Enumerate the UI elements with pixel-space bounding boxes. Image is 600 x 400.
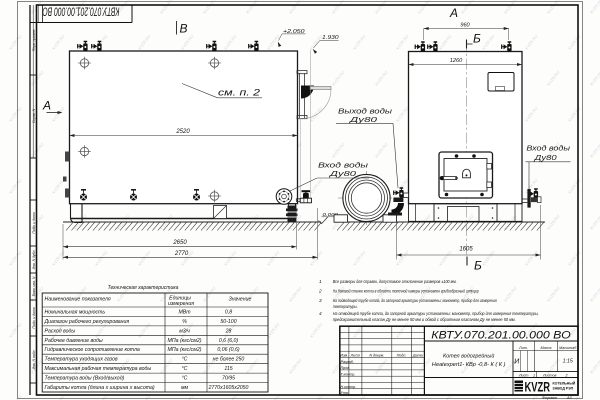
svg-text:Справ. N: Справ. N (32, 108, 36, 123)
svg-text:50-100: 50-100 (220, 319, 236, 325)
svg-text:Все размеры для справок, допус: Все размеры для справок, допустимое откл… (333, 279, 457, 284)
svg-text:Н.контр.: Н.контр. (341, 385, 357, 389)
svg-text:Диапазон рабочего регулировани: Диапазон рабочего регулирования (44, 319, 130, 325)
svg-text:Лист: Лист (350, 354, 361, 358)
svg-text:Наименование показателя: Наименование показателя (45, 297, 111, 303)
svg-text:Вход воды: Вход воды (526, 144, 570, 153)
svg-text:Котел водогрейный: Котел водогрейный (443, 353, 494, 360)
svg-text:Ду80: Ду80 (329, 169, 358, 178)
svg-text:МПа (кгс/см2): МПа (кгс/см2) (168, 347, 202, 353)
svg-text:Температура уходящих газов: Температура уходящих газов (45, 357, 118, 363)
svg-text:Инв. N дубл.: Инв. N дубл. (32, 250, 36, 270)
svg-text:В: В (180, 22, 188, 36)
svg-text:МВт: МВт (178, 309, 191, 315)
svg-text:2: 2 (318, 289, 322, 294)
svg-text:Подп. и дата: Подп. и дата (32, 212, 36, 233)
svg-text:Т.контр.: Т.контр. (341, 372, 356, 376)
svg-text:А: А (449, 6, 458, 20)
svg-text:предохранительный клапан Ду н: предохранительный клапан Ду не менее 50 … (333, 316, 516, 322)
svg-text:см. п. 2: см. п. 2 (218, 88, 260, 98)
svg-text:На подводящей трубе котла, до: На подводящей трубе котла, до запорной а… (333, 297, 497, 303)
svg-text:°С: °С (182, 366, 188, 372)
svg-text:температуры.: температуры. (333, 304, 358, 309)
svg-text:Лист: Лист (518, 373, 529, 377)
svg-text:Б: Б (474, 259, 482, 273)
svg-text:мм: мм (181, 385, 189, 391)
svg-text:Расход воды: Расход воды (45, 328, 76, 334)
svg-text:не более 250: не более 250 (213, 357, 245, 363)
svg-text:Утв.: Утв. (341, 391, 349, 395)
svg-text:Инв. N подл.: Инв. N подл. (32, 350, 36, 370)
svg-text:Пров.: Пров. (341, 366, 351, 370)
svg-text:Ду80: Ду80 (533, 153, 556, 162)
svg-text:Дата: Дата (412, 354, 423, 358)
svg-text:Рабочее давление воды: Рабочее давление воды (45, 338, 103, 344)
svg-text:2: 2 (565, 373, 568, 377)
svg-text:1: 1 (533, 373, 535, 377)
svg-text:КОТЕЛЬНЫЙ: КОТЕЛЬНЫЙ (553, 382, 576, 386)
svg-text:Разраб.: Разраб. (341, 360, 354, 364)
svg-text:2520: 2520 (175, 129, 190, 135)
svg-text:ЗАВОД РЭП: ЗАВОД РЭП (553, 387, 574, 391)
svg-text:0,06 (0,6): 0,06 (0,6) (217, 347, 239, 353)
svg-text:70/95: 70/95 (222, 376, 235, 382)
svg-text:KVZR: KVZR (525, 379, 551, 394)
svg-text:°С: °С (182, 357, 188, 363)
svg-text:Температура воды (Вход/выход): Температура воды (Вход/выход) (45, 376, 125, 382)
svg-text:м3/ч: м3/ч (179, 328, 190, 334)
svg-text:960: 960 (460, 23, 470, 29)
svg-text:КВТУ.070.201.00.000 ВО: КВТУ.070.201.00.000 ВО (43, 4, 120, 18)
svg-text:Номинальная мощность: Номинальная мощность (45, 309, 106, 315)
svg-text:2770х1605х2050: 2770х1605х2050 (208, 385, 249, 391)
svg-text:%: % (182, 319, 187, 325)
svg-text:Перв. примен.: Перв. примен. (32, 29, 36, 52)
svg-text:Техническая характеристика: Техническая характеристика (108, 285, 179, 291)
svg-text:МПа (кгс/см2): МПа (кгс/см2) (168, 338, 202, 344)
svg-text:Подп.: Подп. (397, 354, 407, 358)
svg-text:3: 3 (319, 298, 322, 303)
svg-text:Ду80: Ду80 (348, 115, 378, 124)
svg-text:1:15: 1:15 (563, 359, 573, 365)
svg-text:4: 4 (319, 311, 322, 316)
svg-text:0,6 (6,0): 0,6 (6,0) (219, 338, 239, 344)
svg-text:Изм.: Изм. (340, 354, 348, 358)
svg-text:1: 1 (319, 279, 322, 284)
svg-text:Гидравлическое сопротивление к: Гидравлическое сопротивление котла (45, 347, 140, 353)
svg-text:Габариты котла (длина х ширина: Габариты котла (длина х ширина х высота) (45, 385, 155, 391)
svg-text:Листов: Листов (542, 373, 557, 377)
svg-text:N докум.: N докум. (369, 354, 384, 358)
svg-text:Взам. инв. N: Взам. инв. N (32, 276, 36, 296)
svg-text:А: А (42, 99, 51, 113)
svg-text:°С: °С (182, 376, 188, 382)
svg-text:Максимальная рабочая температу: Максимальная рабочая температура воды (45, 366, 152, 372)
svg-text:Heatexpert1- КВр -0,8- К ( К ): Heatexpert1- КВр -0,8- К ( К ) (432, 362, 506, 368)
svg-text:Масса: Масса (541, 346, 552, 350)
svg-text:Подп. и дата: Подп. и дата (32, 307, 36, 328)
svg-text:2650: 2650 (172, 240, 187, 246)
svg-text:115: 115 (224, 366, 232, 372)
svg-text:А3: А3 (566, 396, 573, 400)
svg-text:Формат: Формат (542, 396, 557, 400)
svg-text:28: 28 (225, 328, 232, 334)
svg-text:2770: 2770 (174, 251, 189, 257)
svg-text:КВТУ.070.201.00.000 ВО: КВТУ.070.201.00.000 ВО (431, 329, 571, 341)
svg-text:Б: Б (473, 32, 481, 46)
svg-text:0,8: 0,8 (225, 309, 232, 315)
svg-text:измерения: измерения (168, 301, 194, 307)
svg-text:Лит.: Лит. (518, 346, 528, 350)
svg-text:1605: 1605 (459, 247, 473, 253)
svg-text:Значение: Значение (229, 297, 252, 303)
svg-text:На боковой стенке котла в обла: На боковой стенке котла в области топочн… (333, 288, 479, 294)
svg-text:Масштаб: Масштаб (559, 346, 577, 350)
svg-text:На отводящей трубе котла, до з: На отводящей трубе котла, до запорной ар… (333, 310, 539, 316)
svg-text:1260: 1260 (450, 58, 463, 64)
